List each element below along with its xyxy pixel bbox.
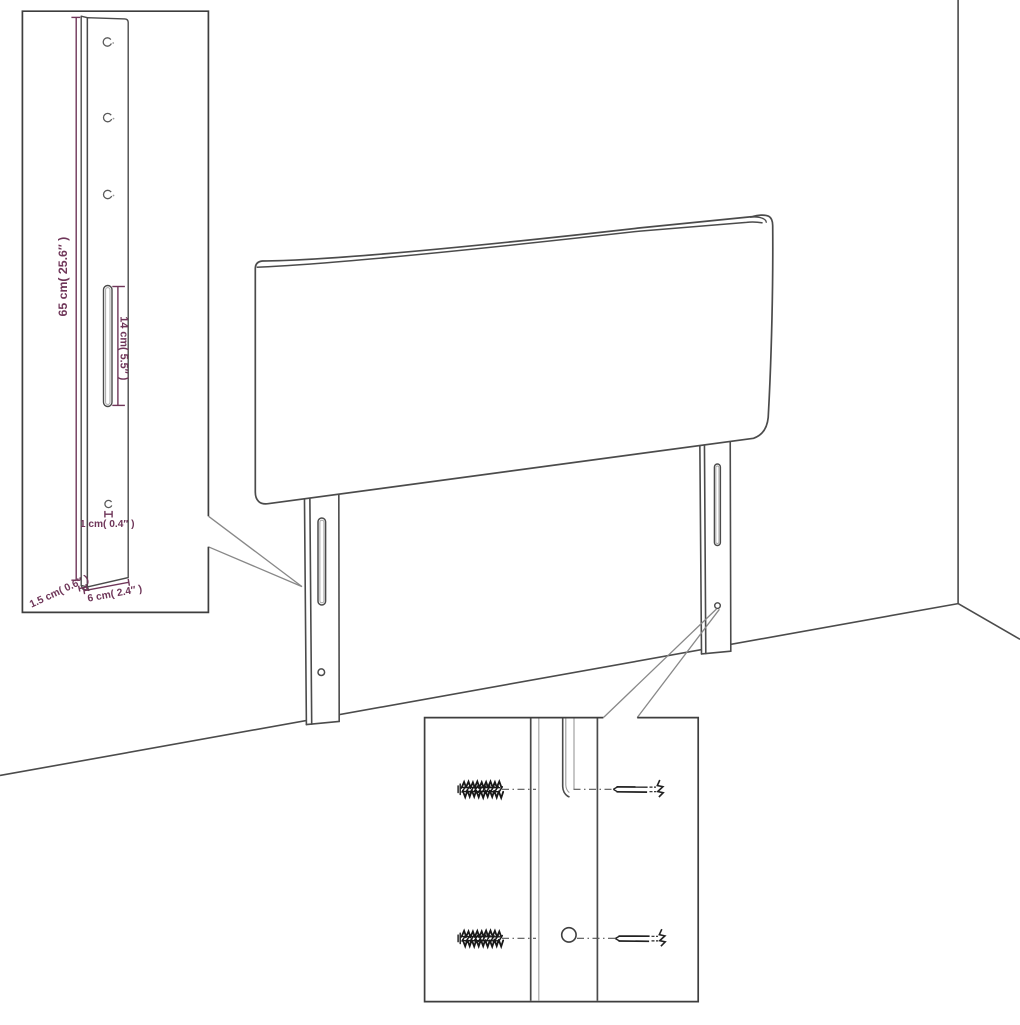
svg-text:14 cm( 5.5″ ): 14 cm( 5.5″ ) xyxy=(117,316,129,380)
svg-text:1 cm( 0.4″ ): 1 cm( 0.4″ ) xyxy=(80,519,135,530)
svg-text:65 cm( 25.6″ ): 65 cm( 25.6″ ) xyxy=(56,237,70,317)
